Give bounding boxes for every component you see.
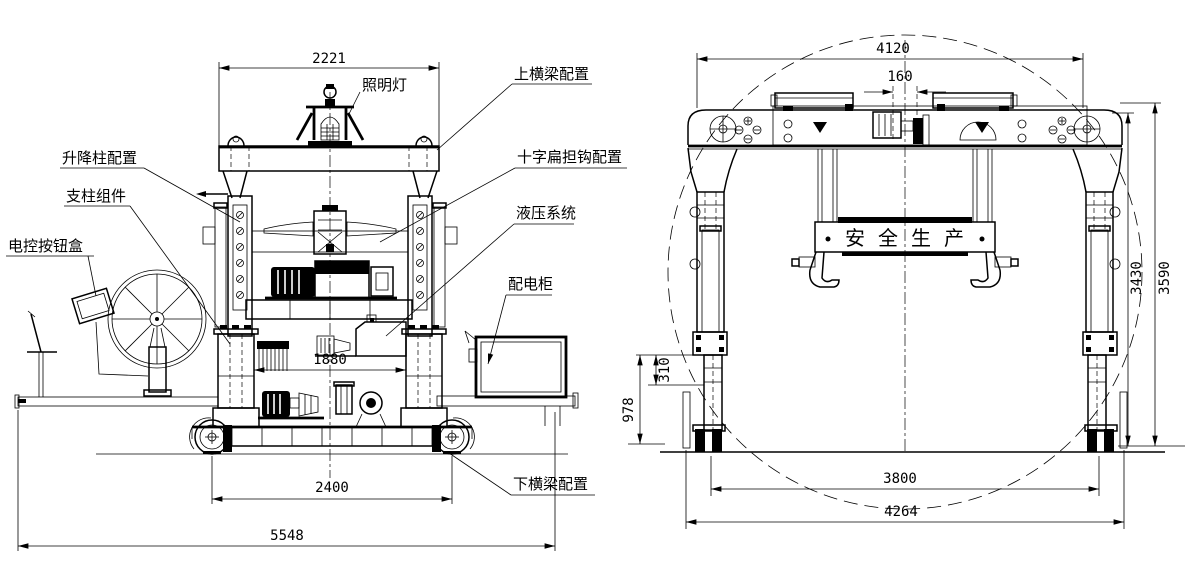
label-upper-beam: 上横梁配置 <box>514 66 589 83</box>
banner-text: 安全生产 <box>845 227 977 250</box>
label-lamp: 照明灯 <box>362 77 407 94</box>
lower-frame <box>192 427 472 446</box>
upper-beam <box>219 146 439 171</box>
left-view-callouts: 照明灯 上横梁配置 升降柱配置 支柱组件 电控按钮盒 十字扁担钩配置 液压系统 … <box>6 66 627 495</box>
dim-track-gauge: 3800 <box>883 471 917 487</box>
dim-wheelbase: 2400 <box>315 480 349 496</box>
cable-reel <box>96 270 206 396</box>
top-hydraulic-cylinders <box>771 93 1017 111</box>
dim-overall-width: 5548 <box>270 528 304 544</box>
label-power-cabinet: 配电柜 <box>508 276 553 293</box>
dim-column-span: 1880 <box>313 352 347 368</box>
right-view-dimensions: 4120 160 3430 3590 310 978 3800 <box>621 41 1185 529</box>
hoist-motor-unit <box>265 261 397 298</box>
dim-top-width: 2221 <box>312 51 346 67</box>
bolt-holes-right <box>417 212 424 299</box>
dim-height-inner: 3430 <box>1129 261 1145 295</box>
label-cross-spreader: 十字扁担钩配置 <box>517 149 622 166</box>
label-hydraulic: 液压系统 <box>516 205 576 222</box>
label-lower-beam: 下横梁配置 <box>513 476 588 493</box>
label-control-box: 电控按钮盒 <box>8 238 83 255</box>
gantry-crane-drawing: 2221 1880 2400 5548 照明灯 上横梁配置 升降柱配置 支柱组件 <box>0 0 1188 575</box>
left-view-dimensions: 2221 1880 2400 5548 <box>18 51 555 551</box>
lower-cross-beam <box>246 300 412 319</box>
dim-height-outer: 3590 <box>1157 261 1173 295</box>
dim-center-offset: 160 <box>887 69 912 85</box>
beam-center-motor <box>873 112 929 145</box>
left-view-front-elevation: 2221 1880 2400 5548 照明灯 上横梁配置 升降柱配置 支柱组件 <box>6 51 627 551</box>
label-lift-column: 升降柱配置 <box>62 150 137 167</box>
left-platform <box>15 395 218 408</box>
signal-stand <box>27 311 57 397</box>
travel-drive-units <box>258 382 386 427</box>
label-support-column: 支柱组件 <box>66 188 126 205</box>
bolt-holes-left <box>237 212 244 299</box>
dim-right-overall-width: 4264 <box>884 504 918 520</box>
power-cabinet <box>437 331 578 426</box>
engineering-drawing-page: 2221 1880 2400 5548 照明灯 上横梁配置 升降柱配置 支柱组件 <box>0 0 1188 575</box>
dim-right-top-width: 4120 <box>876 41 910 57</box>
dim-step: 310 <box>657 357 673 382</box>
right-view-right-leg <box>1073 148 1127 452</box>
brush-contact-fingers <box>257 341 289 371</box>
right-view-side-elevation: 安全生产 4120 160 3430 3590 <box>621 35 1185 529</box>
hydraulic-power-unit <box>315 315 406 356</box>
dim-leg: 978 <box>621 397 637 422</box>
